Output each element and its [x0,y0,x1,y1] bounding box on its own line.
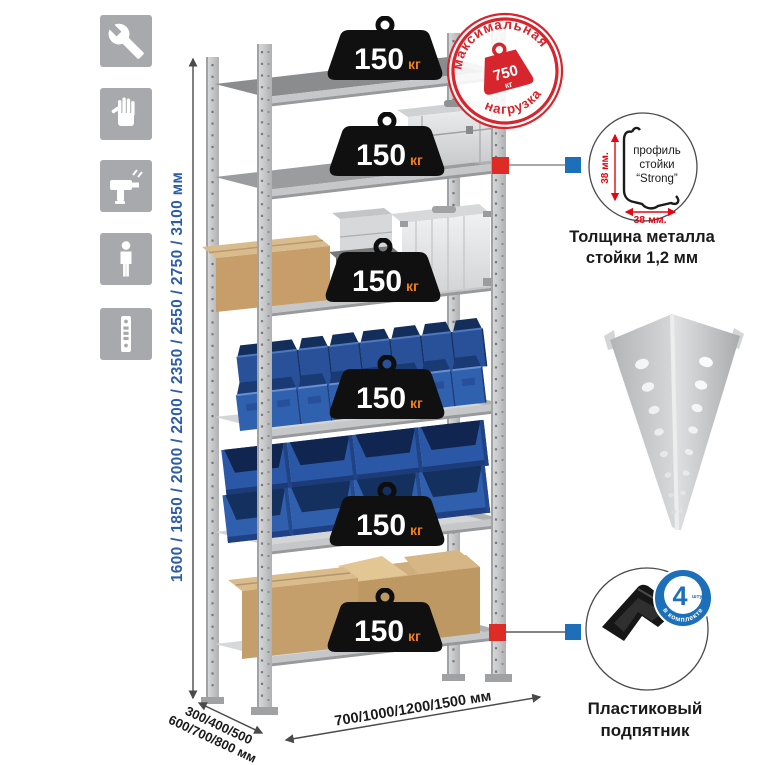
quantity-value: 4 [672,581,687,611]
drill-icon [100,160,152,212]
shelf-load-badge: 150 кг [327,482,447,548]
shelf-load-unit: кг [406,278,419,294]
foot-caption-line2: подпятник [545,720,745,742]
upright-post-photo [604,314,744,530]
profile-label-line2: стойки [639,159,674,171]
shelf-load-unit: кг [410,152,423,168]
foot-caption: Пластиковый подпятник [545,698,745,742]
shelf-load-value: 150 [356,139,406,172]
foot-callout-connector [489,624,581,641]
product-infographic: 1600 / 1850 / 2000 / 2200 / 2350 / 2550 … [0,0,765,765]
tool-tile [100,88,152,140]
shelf-load-unit: кг [410,395,423,411]
profile-horizontal-dim: 38 мм. [633,214,666,225]
profile-detail-diagram: 38 мм. 38 мм. профиль стойки “Strong” [586,111,700,225]
quantity-badge: 4 штуки в комплекте [652,567,714,629]
shelf-load-badge: 150 кг [327,355,447,421]
shelf-load-unit: кг [410,522,423,538]
weight-handle-icon [378,18,392,32]
profile-label-line3: “Strong” [636,173,678,185]
shelf-load-badge: 150 кг [325,16,445,82]
profile-caption-line1: Толщина металла [532,227,752,248]
person-icon [100,233,152,285]
shelf-load-value: 150 [354,43,404,76]
shelf-load-badge: 150 кг [327,112,447,178]
shelf-load-badge: 150 кг [323,238,443,304]
tool-tile [100,15,152,67]
shelf-load-value: 150 [356,509,406,542]
foot-caption-line1: Пластиковый [545,698,745,720]
tool-tile [100,160,152,212]
weight-handle-icon [380,357,394,371]
shelf-load-value: 150 [356,382,406,415]
profile-caption-line2: стойки 1,2 мм [532,248,752,269]
tool-tile [100,233,152,285]
profile-label-line1: профиль [633,145,681,157]
shelf-load-value: 150 [352,265,402,298]
profile-caption: Толщина металла стойки 1,2 мм [532,227,752,268]
profile-vertical-dim: 38 мм. [600,152,611,184]
weight-handle-icon [376,240,390,254]
tool-tile [100,308,152,360]
max-load-stamp: максимальная нагрузка 750 кг [443,9,567,133]
wrench-icon [100,15,152,67]
gloves-icon [100,88,152,140]
weight-handle-icon [380,114,394,128]
weight-handle-icon [378,590,392,604]
shelf-load-unit: кг [408,56,421,72]
profile-callout-connector [492,157,581,174]
shelf-load-badge: 150 кг [325,588,445,654]
shelf-load-unit: кг [408,628,421,644]
shelf-load-value: 150 [354,615,404,648]
quantity-unit: штуки [692,594,709,600]
weight-handle-icon [380,484,394,498]
height-dimensions-label: 1600 / 1850 / 2000 / 2200 / 2350 / 2550 … [169,47,187,707]
upright-profile-icon [100,308,152,360]
